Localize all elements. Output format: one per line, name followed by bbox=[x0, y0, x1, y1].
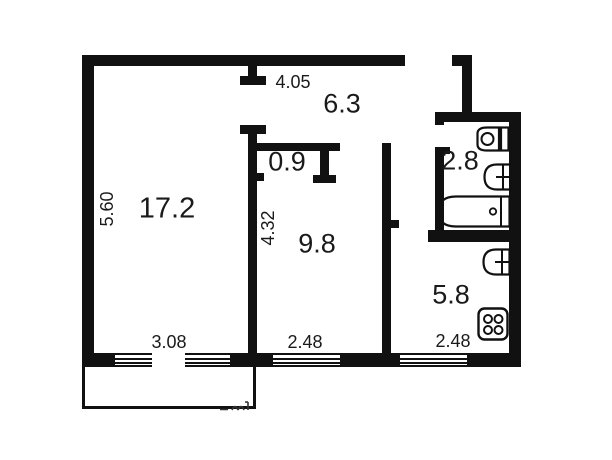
toilet-icon bbox=[476, 126, 510, 152]
window-pane-line bbox=[185, 362, 230, 364]
room-label-hallway: 6.3 bbox=[323, 91, 361, 118]
window-kitchen bbox=[400, 353, 467, 367]
wall-entrance-stub bbox=[462, 55, 472, 117]
kitchen-sink-icon bbox=[482, 248, 512, 276]
watermark-artifact bbox=[219, 399, 255, 412]
window-living-left bbox=[115, 353, 152, 367]
wall-bathroom-top bbox=[435, 112, 521, 122]
balcony-outline-left bbox=[82, 367, 85, 409]
dimension-bedroom-height: 4.32 bbox=[259, 210, 277, 245]
window-pane-line bbox=[273, 362, 340, 364]
window-pane-line bbox=[400, 358, 467, 360]
window-pane-line bbox=[273, 358, 340, 360]
wall-closet-door-tick bbox=[248, 173, 264, 181]
window-bedroom bbox=[273, 353, 340, 367]
window-pane-line bbox=[185, 358, 230, 360]
wall-closet-jamb-foot bbox=[313, 175, 336, 183]
wall-living-stub-cap bbox=[240, 76, 266, 85]
wall-bathroom-left-upper bbox=[435, 112, 444, 125]
dimension-kitchen-width: 2.48 bbox=[435, 332, 470, 350]
wall-bottom-segment bbox=[340, 353, 400, 367]
wall-living-main-cap bbox=[240, 125, 266, 134]
dimension-living-height: 5.60 bbox=[98, 191, 116, 226]
floor-plan: 17.2 6.3 0.9 9.8 2.8 5.8 4.05 5.60 4.32 … bbox=[0, 0, 612, 460]
room-label-bathroom: 2.8 bbox=[441, 148, 479, 175]
bathroom-sink-icon bbox=[483, 163, 513, 191]
room-label-bedroom: 9.8 bbox=[298, 231, 336, 258]
dimension-hallway-width: 4.05 bbox=[275, 73, 310, 91]
window-pane-line bbox=[400, 362, 467, 364]
room-label-living: 17.2 bbox=[139, 195, 195, 224]
bathtub-icon bbox=[437, 195, 511, 228]
wall-right bbox=[509, 112, 521, 367]
dimension-bedroom-width: 2.48 bbox=[287, 333, 322, 351]
room-label-kitchen: 5.8 bbox=[432, 282, 470, 309]
wall-bottom-segment bbox=[230, 353, 273, 367]
window-living-right bbox=[185, 353, 230, 367]
wall-left bbox=[82, 55, 94, 367]
wall-bathroom-bottom bbox=[428, 230, 509, 242]
window-pane-line bbox=[115, 358, 152, 360]
wall-bottom-segment bbox=[467, 353, 521, 367]
wall-living-main bbox=[248, 125, 257, 353]
dimension-living-width: 3.08 bbox=[151, 333, 186, 351]
window-pane-line bbox=[115, 362, 152, 364]
wall-bedroom-right bbox=[382, 143, 391, 353]
room-label-closet: 0.9 bbox=[268, 149, 306, 176]
wall-bottom-segment bbox=[82, 353, 115, 367]
stove-icon bbox=[477, 307, 509, 341]
wall-kitchen-door-jamb bbox=[391, 220, 399, 228]
wall-top bbox=[82, 55, 405, 66]
